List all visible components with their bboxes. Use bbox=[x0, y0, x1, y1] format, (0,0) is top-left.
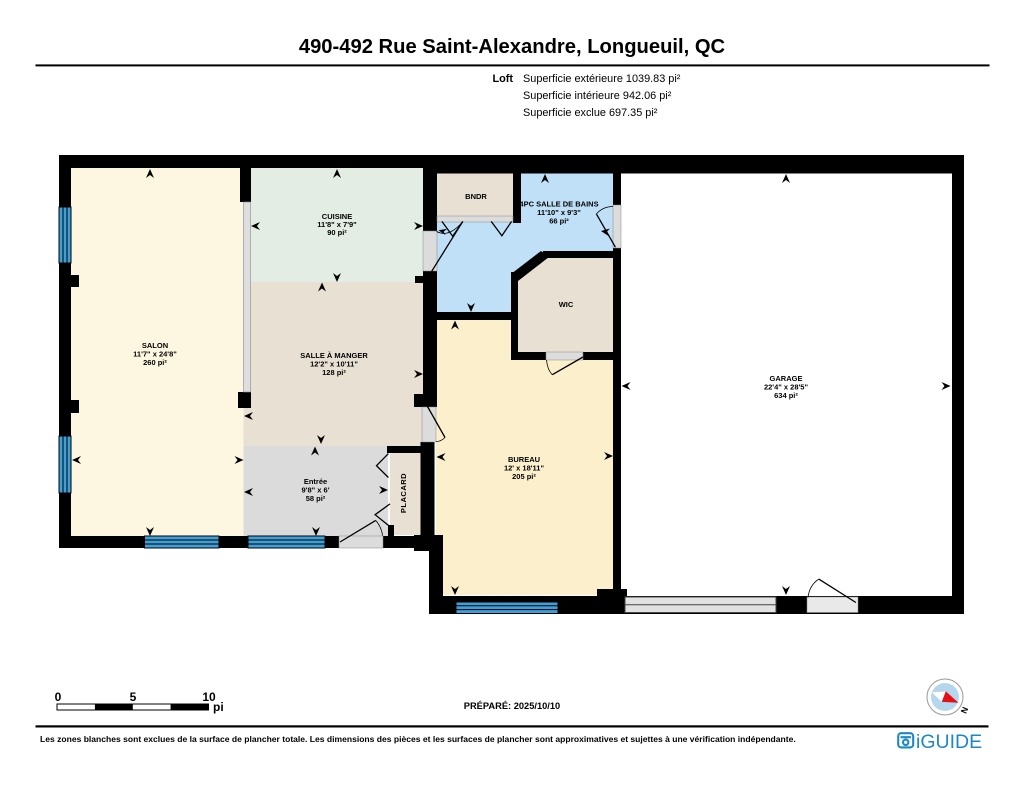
svg-text:Superficie intérieure 942.06 p: Superficie intérieure 942.06 pi² bbox=[523, 90, 672, 102]
svg-text:WIC: WIC bbox=[559, 300, 574, 309]
svg-text:Superficie exclue 697.35 pi²: Superficie exclue 697.35 pi² bbox=[523, 107, 658, 119]
svg-text:0: 0 bbox=[55, 690, 62, 704]
svg-text:490-492 Rue Saint-Alexandre, L: 490-492 Rue Saint-Alexandre, Longueuil, … bbox=[299, 36, 726, 58]
svg-text:Les zones blanches sont exclue: Les zones blanches sont exclues de la su… bbox=[40, 734, 796, 744]
svg-text:Superficie extérieure 1039.83: Superficie extérieure 1039.83 pi² bbox=[523, 73, 681, 85]
svg-text:pi: pi bbox=[213, 700, 224, 714]
svg-text:PRÉPARÉ: 2025/10/10: PRÉPARÉ: 2025/10/10 bbox=[464, 701, 560, 711]
svg-text:iGUIDE: iGUIDE bbox=[916, 731, 982, 753]
svg-text:BNDR: BNDR bbox=[465, 192, 487, 201]
svg-text:5: 5 bbox=[130, 690, 137, 704]
svg-text:PLACARD: PLACARD bbox=[399, 473, 408, 513]
svg-text:Loft: Loft bbox=[492, 73, 513, 85]
